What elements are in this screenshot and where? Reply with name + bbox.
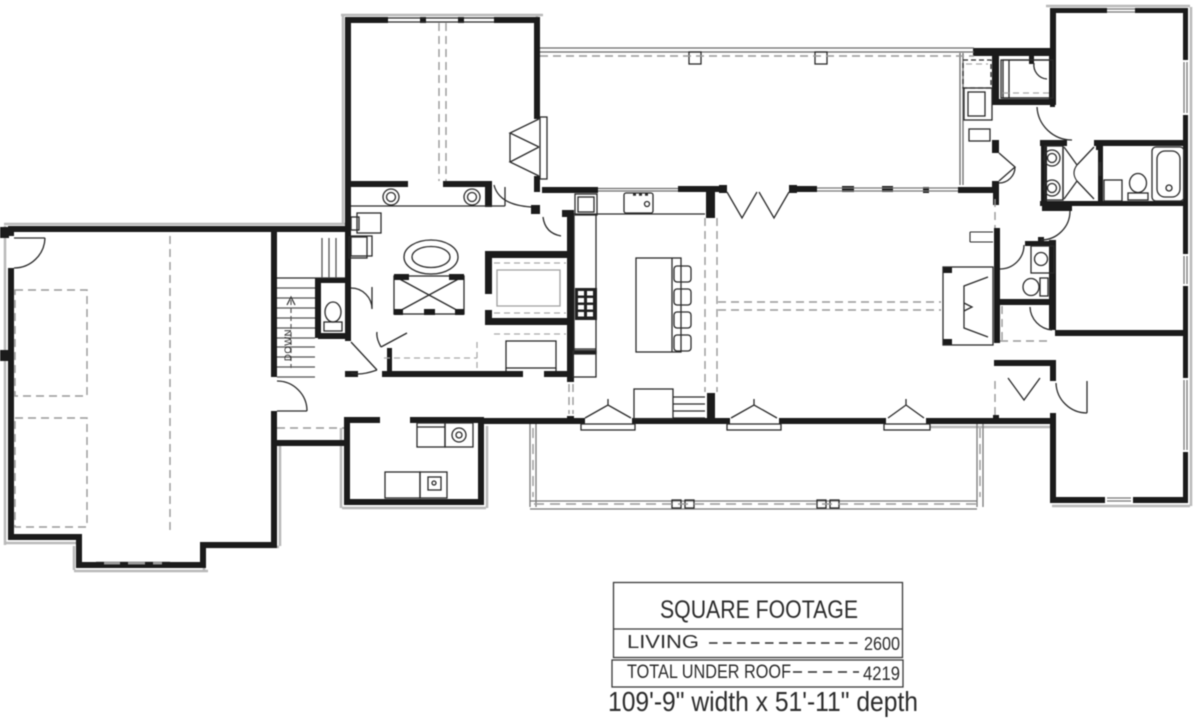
- svg-text:DOWN: DOWN: [283, 329, 294, 361]
- svg-text:LIVING: LIVING: [627, 632, 699, 652]
- svg-text:TOTAL UNDER ROOF: TOTAL UNDER ROOF: [627, 662, 791, 683]
- svg-text:4219: 4219: [863, 664, 900, 685]
- svg-text:2600: 2600: [864, 634, 900, 654]
- svg-text:SQUARE FOOTAGE: SQUARE FOOTAGE: [660, 596, 858, 624]
- svg-text:109'-9" width x 51'-11" depth: 109'-9" width x 51'-11" depth: [608, 686, 918, 717]
